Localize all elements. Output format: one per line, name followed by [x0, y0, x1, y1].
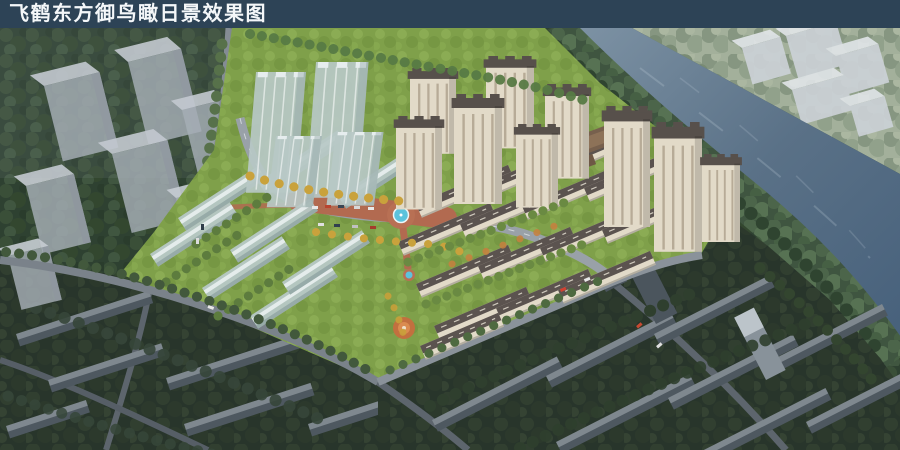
residential-tower [602, 106, 653, 227]
residential-tower [452, 94, 505, 204]
page-title: 飞鹤东方御鸟瞰日景效果图 [0, 0, 900, 29]
small-pool [406, 272, 413, 279]
car [325, 205, 331, 208]
residential-tower [652, 122, 705, 252]
car [352, 225, 358, 228]
glass-tower [267, 136, 322, 207]
car [318, 223, 324, 226]
fountain-dot [400, 214, 403, 217]
car [368, 207, 374, 210]
car [370, 226, 376, 229]
car [338, 205, 344, 208]
residential-tower [700, 154, 742, 242]
car [196, 238, 199, 244]
residential-tower [514, 124, 560, 208]
car [201, 224, 204, 230]
rendering-viewport: 飞鹤东方御鸟瞰日景效果图 [0, 0, 900, 450]
title-bar: 飞鹤东方御鸟瞰日景效果图 [0, 0, 900, 28]
car [334, 224, 340, 227]
car [354, 206, 360, 209]
car [312, 206, 318, 209]
aerial-rendering [0, 28, 900, 450]
haze-overlay [0, 28, 230, 178]
residential-tower [394, 116, 445, 210]
